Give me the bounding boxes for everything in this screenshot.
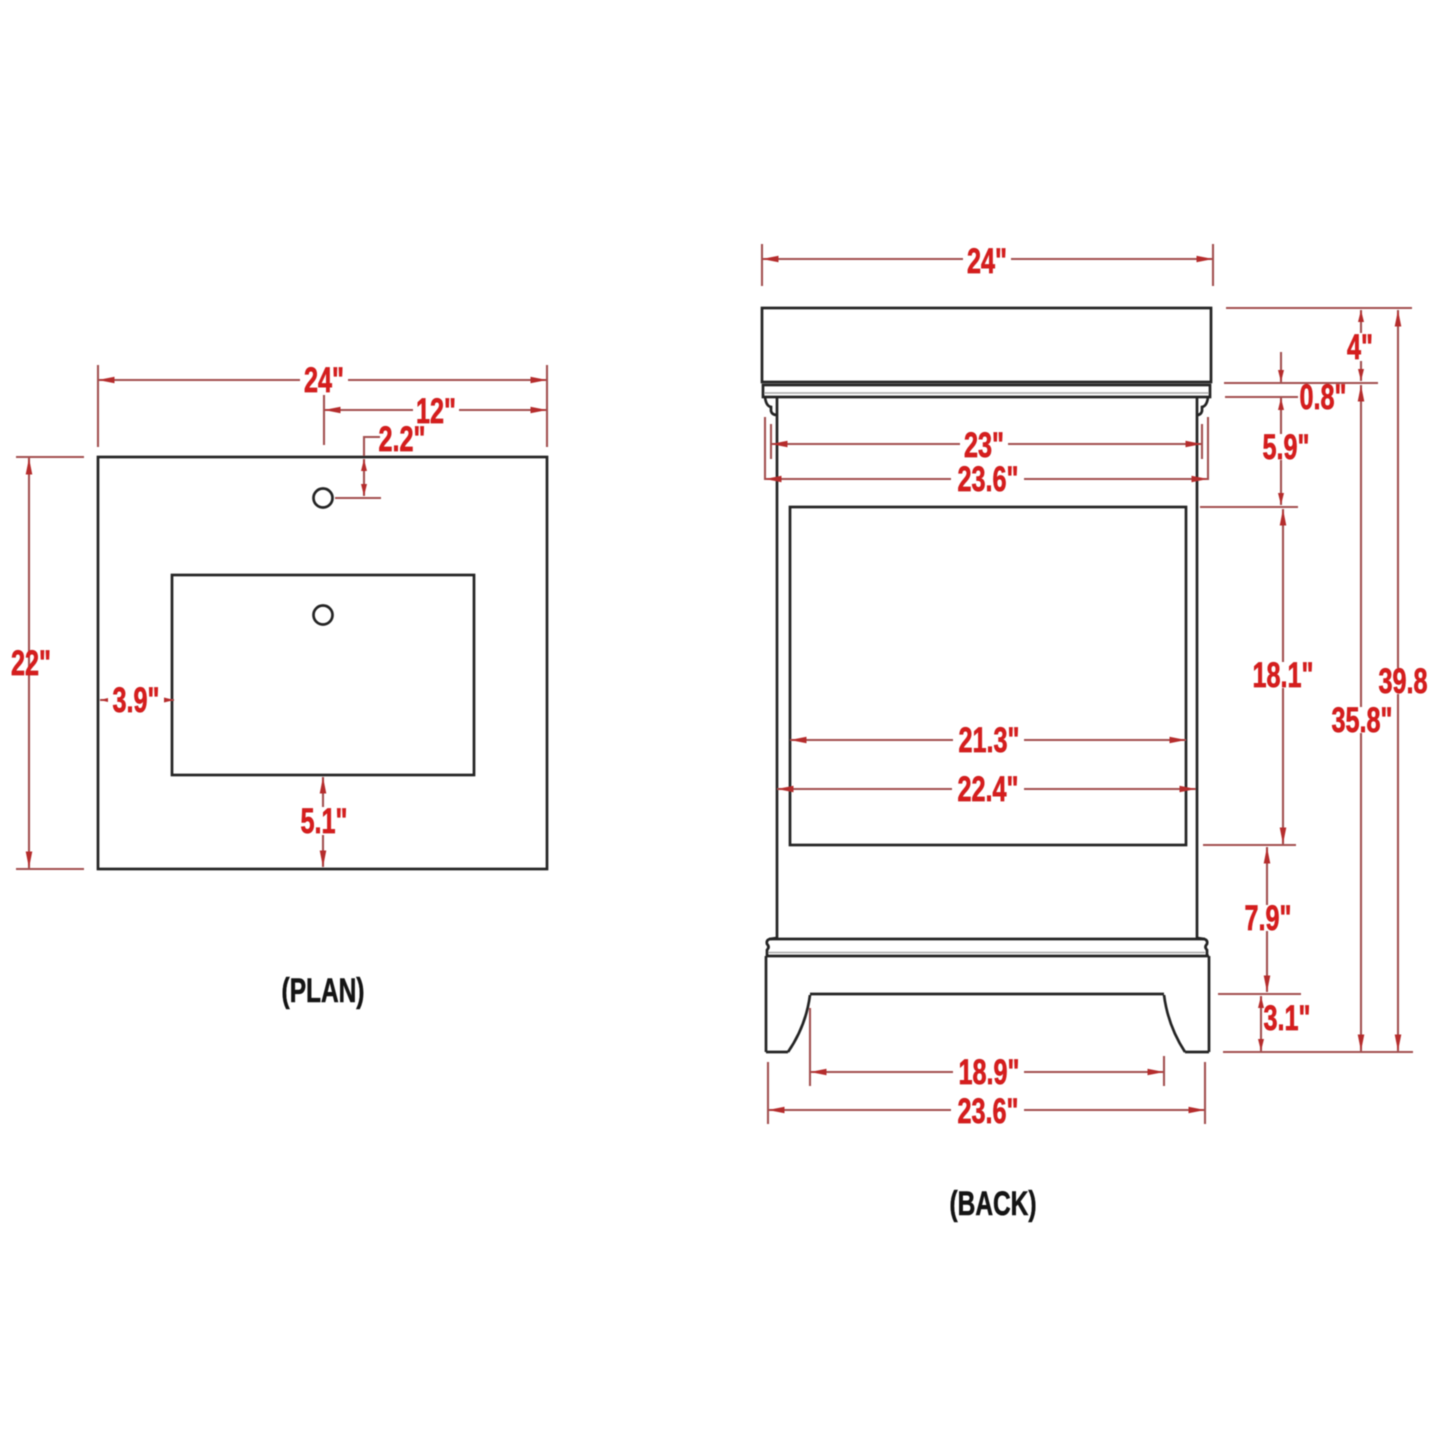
svg-text:24": 24": [967, 242, 1007, 281]
svg-text:2.2": 2.2": [379, 420, 426, 459]
svg-text:23.6": 23.6": [958, 460, 1019, 499]
svg-text:35.8": 35.8": [1332, 701, 1393, 740]
svg-text:3.1": 3.1": [1264, 999, 1311, 1038]
svg-text:21.3": 21.3": [959, 721, 1020, 760]
svg-text:3.9": 3.9": [113, 681, 160, 720]
svg-text:5.1": 5.1": [301, 802, 348, 841]
svg-text:5.9": 5.9": [1263, 428, 1310, 467]
svg-text:23.6": 23.6": [958, 1092, 1019, 1131]
svg-text:22": 22": [11, 644, 51, 683]
svg-text:4": 4": [1347, 328, 1373, 367]
svg-text:(BACK): (BACK): [950, 1185, 1037, 1223]
svg-text:39.8: 39.8: [1378, 662, 1427, 701]
svg-text:18.1": 18.1": [1253, 656, 1314, 695]
svg-text:0.8": 0.8": [1300, 378, 1347, 417]
svg-text:24": 24": [304, 361, 344, 400]
svg-text:(PLAN): (PLAN): [282, 972, 365, 1010]
svg-text:7.9": 7.9": [1245, 899, 1292, 938]
svg-text:18.9": 18.9": [959, 1053, 1020, 1092]
svg-text:22.4": 22.4": [958, 770, 1019, 809]
